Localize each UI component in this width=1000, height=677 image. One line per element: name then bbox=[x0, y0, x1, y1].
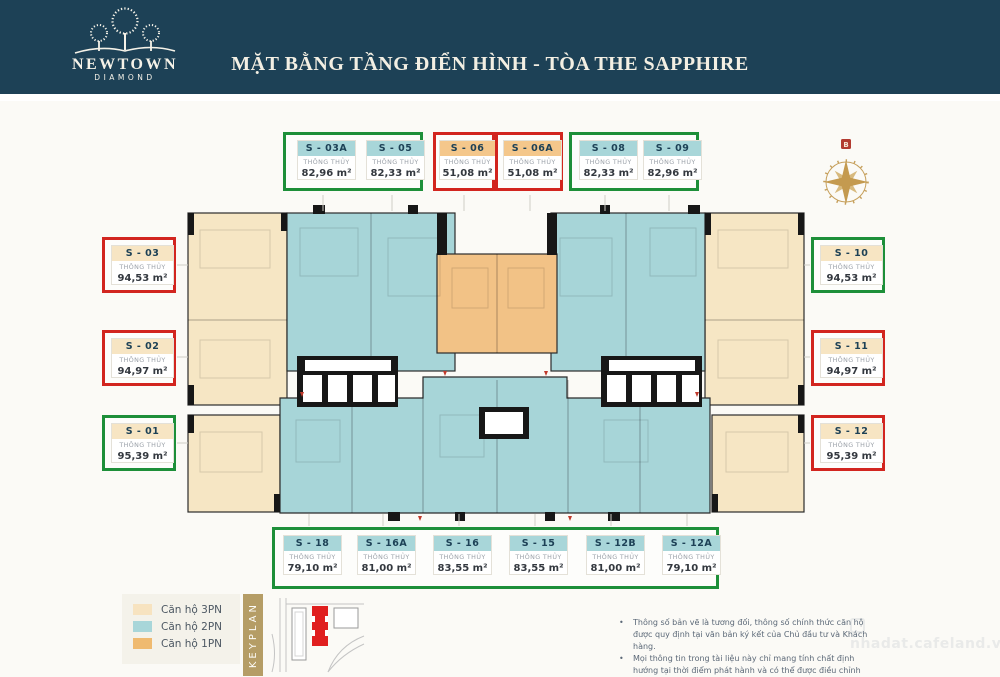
page: NEWTOWN DIAMOND MẶT BẰNG TẦNG ĐIỂN HÌNH … bbox=[0, 0, 1000, 677]
unit-spec-label: THÔNG THỦY bbox=[663, 554, 720, 561]
unit-area: 51,08 m² bbox=[504, 168, 561, 179]
unit-area: 83,55 m² bbox=[434, 563, 491, 574]
watermark: nhadat.cafeland.vn bbox=[850, 618, 1000, 652]
legend-label: Căn hộ 3PN bbox=[161, 604, 222, 616]
unit-area: 94,97 m² bbox=[821, 366, 882, 377]
unit-area: 81,00 m² bbox=[358, 563, 415, 574]
unit-card: S - 12BTHÔNG THỦY81,00 m² bbox=[586, 535, 645, 575]
unit-area: 79,10 m² bbox=[663, 563, 720, 574]
unit-group-bottom-1: S - 18THÔNG THỦY79,10 m²S - 16ATHÔNG THỦ… bbox=[272, 527, 719, 589]
svg-text:B: B bbox=[843, 141, 848, 149]
unit-group-left-1: S - 03THÔNG THỦY94,53 m² bbox=[102, 237, 176, 293]
unit-area: 82,33 m² bbox=[367, 168, 424, 179]
unit-spec-label: THÔNG THỦY bbox=[510, 554, 567, 561]
unit-spec-label: THÔNG THỦY bbox=[112, 264, 173, 271]
unit-card: S - 05THÔNG THỦY82,33 m² bbox=[366, 140, 425, 180]
keyplan-label: KEYPLAN bbox=[248, 602, 259, 668]
unit-card: S - 12THÔNG THỦY95,39 m² bbox=[820, 423, 883, 463]
unit-label: S - 11 bbox=[821, 339, 882, 354]
unit-area: 81,00 m² bbox=[587, 563, 644, 574]
unit-label: S - 16 bbox=[434, 536, 491, 551]
unit-group-right-2: S - 11THÔNG THỦY94,97 m² bbox=[811, 330, 885, 386]
unit-spec-label: THÔNG THỦY bbox=[112, 442, 173, 449]
unit-card: S - 01THÔNG THỦY95,39 m² bbox=[111, 423, 174, 463]
unit-area: 79,10 m² bbox=[284, 563, 341, 574]
unit-spec-label: THÔNG THỦY bbox=[644, 159, 701, 166]
unit-label: S - 01 bbox=[112, 424, 173, 439]
unit-group-right-3: S - 12THÔNG THỦY95,39 m² bbox=[811, 415, 885, 471]
unit-label: S - 08 bbox=[580, 141, 637, 156]
unit-area: 51,08 m² bbox=[440, 168, 495, 179]
unit-label: S - 06A bbox=[504, 141, 561, 156]
unit-spec-label: THÔNG THỦY bbox=[112, 357, 173, 364]
unit-group-left-2: S - 02THÔNG THỦY94,97 m² bbox=[102, 330, 176, 386]
unit-label: S - 18 bbox=[284, 536, 341, 551]
unit-label: S - 15 bbox=[510, 536, 567, 551]
note-item: Thông số bản vẽ là tương đối, thông số c… bbox=[617, 617, 875, 653]
unit-spec-label: THÔNG THỦY bbox=[821, 357, 882, 364]
header-divider bbox=[0, 94, 1000, 101]
unit-area: 94,97 m² bbox=[112, 366, 173, 377]
logo-trees-icon bbox=[73, 6, 177, 56]
unit-spec-label: THÔNG THỦY bbox=[821, 442, 882, 449]
legend-item-3pn: Căn hộ 3PN bbox=[133, 601, 222, 618]
swatch-3pn-icon bbox=[133, 604, 152, 615]
unit-spec-label: THÔNG THỦY bbox=[298, 159, 355, 166]
page-title: MẶT BẰNG TẦNG ĐIỂN HÌNH - TÒA THE SAPPHI… bbox=[180, 53, 800, 76]
unit-spec-label: THÔNG THỦY bbox=[821, 264, 882, 271]
unit-card: S - 12ATHÔNG THỦY79,10 m² bbox=[662, 535, 721, 575]
floor-plan bbox=[170, 195, 820, 530]
legend-label: Căn hộ 1PN bbox=[161, 638, 222, 650]
logo-name: NEWTOWN bbox=[70, 56, 180, 73]
legend-label: Căn hộ 2PN bbox=[161, 621, 222, 633]
unit-group-top-4: S - 08THÔNG THỦY82,33 m²S - 09THÔNG THỦY… bbox=[569, 132, 699, 191]
unit-area: 82,96 m² bbox=[644, 168, 701, 179]
unit-label: S - 02 bbox=[112, 339, 173, 354]
unit-label: S - 12 bbox=[821, 424, 882, 439]
unit-label: S - 16A bbox=[358, 536, 415, 551]
logo: NEWTOWN DIAMOND bbox=[70, 6, 180, 83]
unit-card: S - 09THÔNG THỦY82,96 m² bbox=[643, 140, 702, 180]
unit-card: S - 03ATHÔNG THỦY82,96 m² bbox=[297, 140, 356, 180]
legend: Căn hộ 3PN Căn hộ 2PN Căn hộ 1PN bbox=[133, 601, 222, 652]
unit-label: S - 06 bbox=[440, 141, 495, 156]
unit-label: S - 03 bbox=[112, 246, 173, 261]
compass-icon: B bbox=[815, 138, 877, 210]
unit-label: S - 05 bbox=[367, 141, 424, 156]
legend-item-1pn: Căn hộ 1PN bbox=[133, 635, 222, 652]
unit-area: 94,53 m² bbox=[821, 273, 882, 284]
logo-subtitle: DIAMOND bbox=[70, 73, 180, 83]
unit-card: S - 16THÔNG THỦY83,55 m² bbox=[433, 535, 492, 575]
unit-card: S - 06THÔNG THỦY51,08 m² bbox=[439, 140, 496, 180]
unit-spec-label: THÔNG THỦY bbox=[440, 159, 495, 166]
unit-spec-label: THÔNG THỦY bbox=[434, 554, 491, 561]
unit-group-top-1: S - 03ATHÔNG THỦY82,96 m²S - 05THÔNG THỦ… bbox=[283, 132, 423, 191]
swatch-1pn-icon bbox=[133, 638, 152, 649]
unit-group-left-3: S - 01THÔNG THỦY95,39 m² bbox=[102, 415, 176, 471]
unit-spec-label: THÔNG THỦY bbox=[358, 554, 415, 561]
unit-label: S - 12B bbox=[587, 536, 644, 551]
unit-card: S - 16ATHÔNG THỦY81,00 m² bbox=[357, 535, 416, 575]
unit-card: S - 06ATHÔNG THỦY51,08 m² bbox=[503, 140, 562, 180]
unit-label: S - 12A bbox=[663, 536, 720, 551]
keyplan-bar: KEYPLAN bbox=[243, 594, 263, 676]
unit-card: S - 10THÔNG THỦY94,53 m² bbox=[820, 245, 883, 285]
unit-area: 82,96 m² bbox=[298, 168, 355, 179]
unit-card: S - 02THÔNG THỦY94,97 m² bbox=[111, 338, 174, 378]
unit-area: 83,55 m² bbox=[510, 563, 567, 574]
unit-card: S - 18THÔNG THỦY79,10 m² bbox=[283, 535, 342, 575]
unit-area: 82,33 m² bbox=[580, 168, 637, 179]
swatch-2pn-icon bbox=[133, 621, 152, 632]
unit-card: S - 15THÔNG THỦY83,55 m² bbox=[509, 535, 568, 575]
legend-item-2pn: Căn hộ 2PN bbox=[133, 618, 222, 635]
footer-notes: Thông số bản vẽ là tương đối, thông số c… bbox=[617, 617, 875, 677]
unit-area: 95,39 m² bbox=[821, 451, 882, 462]
watermark-logo-icon bbox=[850, 618, 865, 633]
unit-area: 95,39 m² bbox=[112, 451, 173, 462]
unit-spec-label: THÔNG THỦY bbox=[580, 159, 637, 166]
unit-group-right-1: S - 10THÔNG THỦY94,53 m² bbox=[811, 237, 885, 293]
note-item: Mọi thông tin trong tài liệu này chỉ man… bbox=[617, 653, 875, 677]
unit-spec-label: THÔNG THỦY bbox=[367, 159, 424, 166]
unit-label: S - 09 bbox=[644, 141, 701, 156]
unit-label: S - 03A bbox=[298, 141, 355, 156]
unit-spec-label: THÔNG THỦY bbox=[284, 554, 341, 561]
unit-spec-label: THÔNG THỦY bbox=[587, 554, 644, 561]
unit-spec-label: THÔNG THỦY bbox=[504, 159, 561, 166]
unit-label: S - 10 bbox=[821, 246, 882, 261]
unit-area: 94,53 m² bbox=[112, 273, 173, 284]
unit-card: S - 03THÔNG THỦY94,53 m² bbox=[111, 245, 174, 285]
unit-group-top-3: S - 06ATHÔNG THỦY51,08 m² bbox=[495, 132, 563, 191]
unit-card: S - 08THÔNG THỦY82,33 m² bbox=[579, 140, 638, 180]
keyplan-highlight-building bbox=[312, 606, 328, 646]
header-bar: NEWTOWN DIAMOND MẶT BẰNG TẦNG ĐIỂN HÌNH … bbox=[0, 0, 1000, 94]
unit-card: S - 11THÔNG THỦY94,97 m² bbox=[820, 338, 883, 378]
unit-group-top-2: S - 06THÔNG THỦY51,08 m² bbox=[433, 132, 495, 191]
keyplan-map bbox=[268, 594, 368, 676]
